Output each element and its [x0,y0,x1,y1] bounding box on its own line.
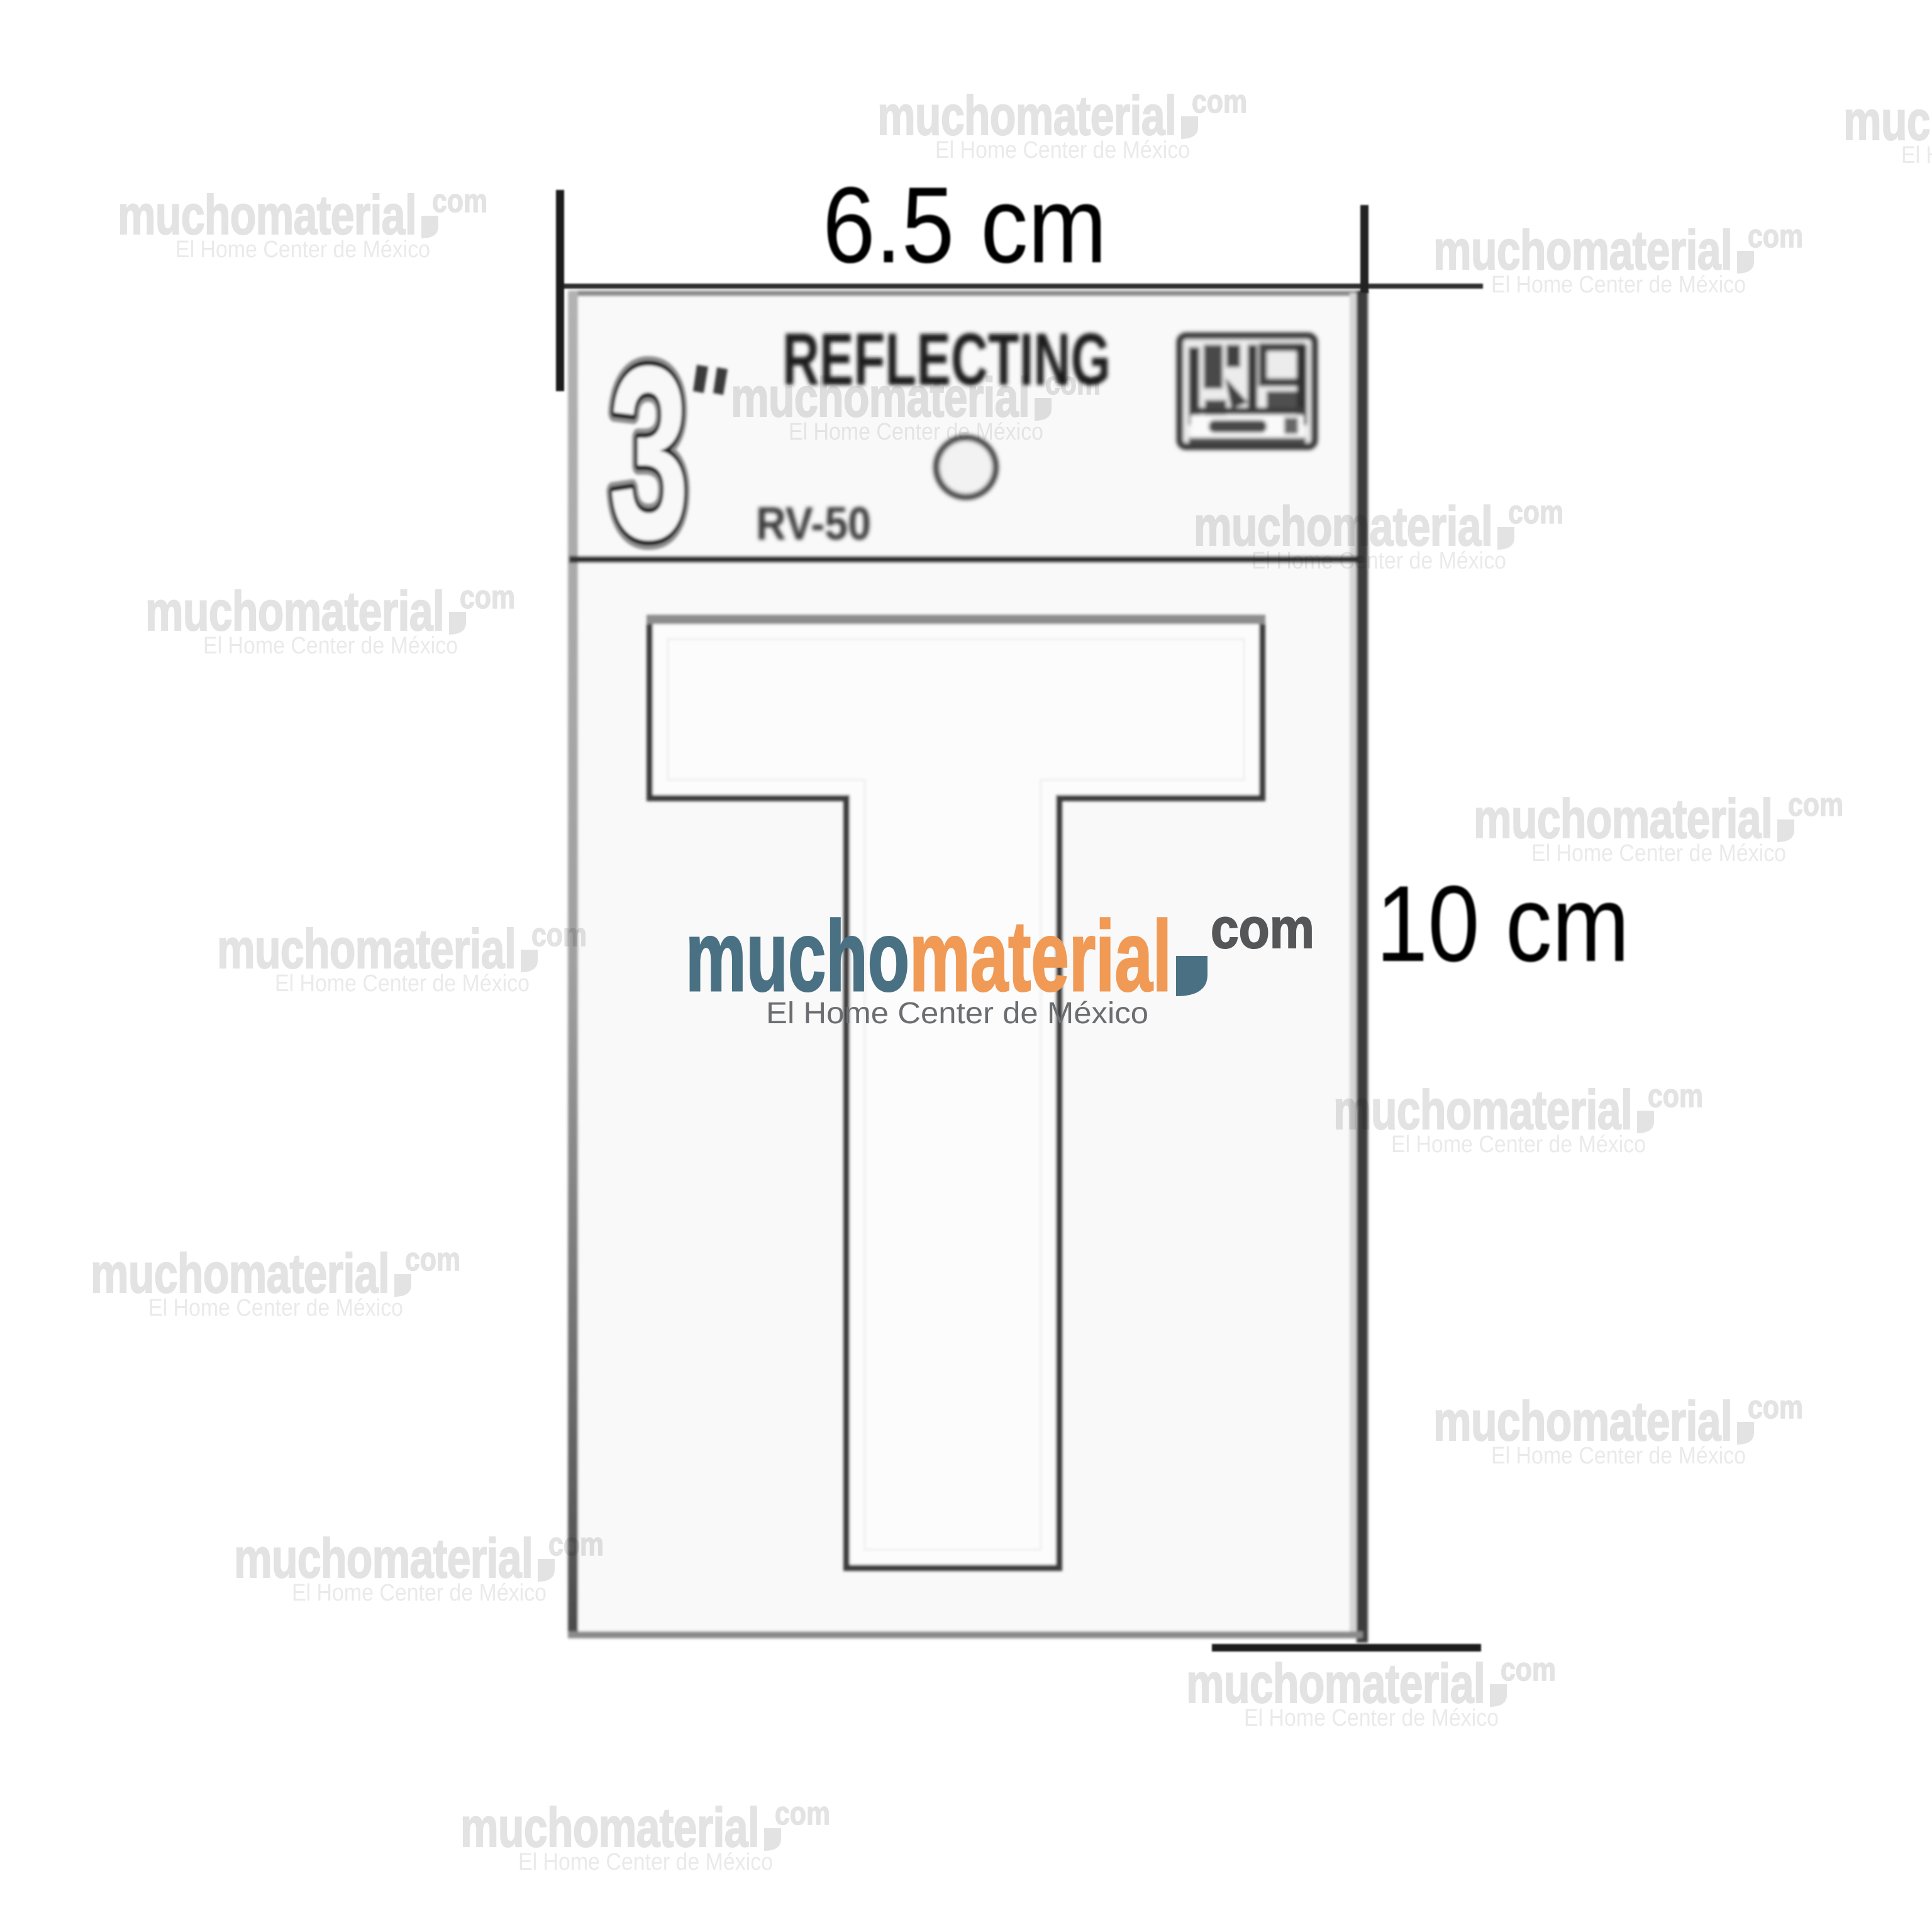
svg-text:RV-50: RV-50 [756,497,871,550]
svg-text:com: com [1211,897,1314,960]
svg-text:material: material [909,900,1172,1012]
svg-text:6.5 cm: 6.5 cm [823,165,1107,286]
svg-text:3: 3 [609,315,689,591]
svg-text:El Home Center de México: El Home Center de México [766,997,1148,1030]
svg-text:mucho: mucho [686,900,909,1012]
svg-text:10 cm: 10 cm [1376,863,1629,984]
